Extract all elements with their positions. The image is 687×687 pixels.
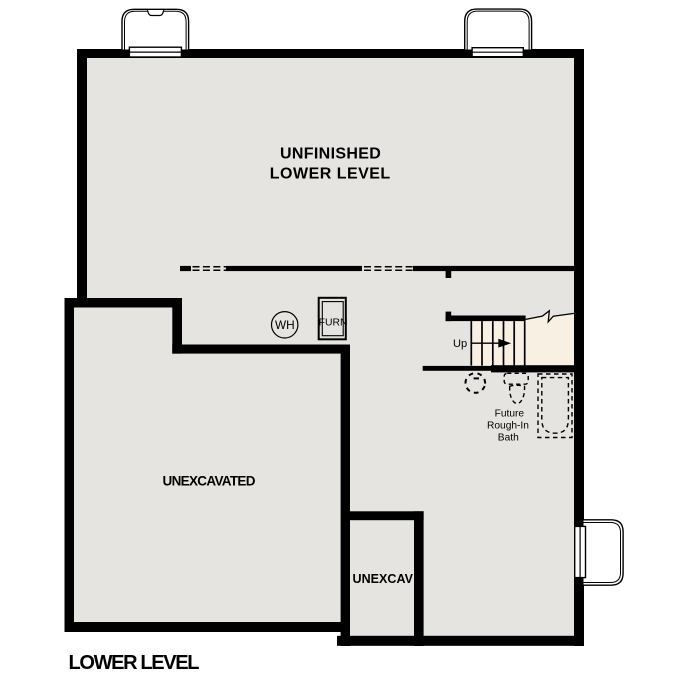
svg-text:LOWER LEVEL: LOWER LEVEL <box>270 165 391 182</box>
svg-text:Rough-In: Rough-In <box>487 420 529 431</box>
svg-text:UNFINISHED: UNFINISHED <box>280 145 381 162</box>
svg-text:UNEXCAV: UNEXCAV <box>353 572 414 586</box>
svg-text:FURN: FURN <box>319 317 348 328</box>
svg-text:Future: Future <box>495 408 525 419</box>
svg-text:Bath: Bath <box>498 432 519 443</box>
svg-text:Up: Up <box>453 338 467 350</box>
svg-text:LOWER LEVEL: LOWER LEVEL <box>69 652 200 674</box>
svg-text:UNEXCAVATED: UNEXCAVATED <box>163 474 256 489</box>
svg-text:WH: WH <box>275 318 295 332</box>
